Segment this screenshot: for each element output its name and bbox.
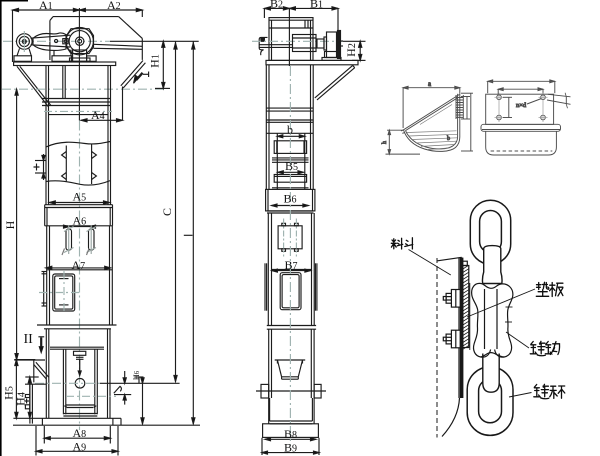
svg-text:II: II bbox=[24, 332, 34, 347]
svg-text:B7: B7 bbox=[285, 258, 298, 272]
svg-text:B2: B2 bbox=[270, 0, 283, 11]
svg-text:C: C bbox=[160, 208, 174, 216]
svg-text:A5: A5 bbox=[73, 190, 87, 204]
svg-text:A8: A8 bbox=[73, 426, 87, 440]
svg-text:n×d: n×d bbox=[516, 102, 527, 109]
svg-text:A9: A9 bbox=[73, 440, 87, 454]
svg-text:B6: B6 bbox=[284, 192, 297, 206]
svg-text:A1: A1 bbox=[39, 0, 53, 12]
svg-text:A2: A2 bbox=[107, 0, 121, 12]
svg-text:A6: A6 bbox=[73, 214, 87, 228]
svg-text:B5: B5 bbox=[285, 159, 298, 173]
svg-text:H6: H6 bbox=[132, 370, 141, 380]
svg-text:h: h bbox=[382, 141, 388, 144]
svg-text:A7: A7 bbox=[72, 258, 86, 272]
svg-text:H2: H2 bbox=[344, 43, 358, 57]
svg-text:B9: B9 bbox=[284, 440, 297, 454]
svg-text:H4: H4 bbox=[14, 392, 28, 406]
svg-text:B8: B8 bbox=[284, 427, 297, 441]
svg-text:H1: H1 bbox=[148, 54, 162, 68]
svg-text:B1: B1 bbox=[310, 0, 323, 11]
svg-text:A4: A4 bbox=[91, 108, 105, 122]
svg-text:H: H bbox=[3, 220, 17, 229]
svg-text:b: b bbox=[287, 123, 293, 137]
svg-text:b: b bbox=[447, 136, 450, 142]
